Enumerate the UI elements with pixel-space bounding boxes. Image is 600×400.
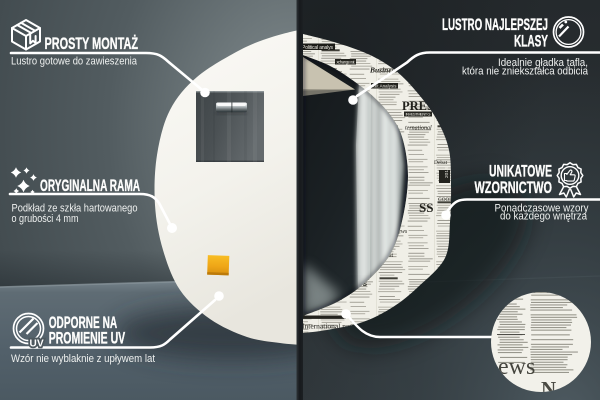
svg-text:LUSTRO NAJLEPSZEJ: LUSTRO NAJLEPSZEJ (442, 16, 548, 34)
svg-text:o grubości 4 mm: o grubości 4 mm (12, 213, 79, 225)
svg-text:INVESTMENT G: INVESTMENT G (406, 112, 431, 117)
svg-text:Political analys: Political analys (302, 45, 334, 51)
svg-text:ORYGINALNA RAMA: ORYGINALNA RAMA (40, 177, 140, 195)
svg-text:PROSTY MONTAŻ: PROSTY MONTAŻ (45, 35, 139, 53)
svg-text:xchange rat: xchange rat (337, 60, 356, 65)
svg-text:WZORNICTWO: WZORNICTWO (475, 179, 553, 197)
svg-text:ternational: ternational (405, 126, 432, 132)
svg-text:do każdego wnętrza: do każdego wnętrza (500, 211, 588, 223)
svg-text:która nie zniekształca odbicia: która nie zniekształca odbicia (462, 66, 589, 78)
svg-text:PROMIENIE UV: PROMIENIE UV (49, 330, 126, 348)
svg-text:Debat: Debat (434, 160, 448, 166)
svg-text:SS: SS (419, 200, 433, 215)
svg-text:UV: UV (30, 339, 45, 350)
svg-text:GOOD: GOOD (438, 197, 453, 203)
svg-text:2013: 2013 (444, 167, 450, 178)
svg-text:KLASY: KLASY (514, 33, 548, 51)
svg-text:Lustro gotowe do zawieszenia: Lustro gotowe do zawieszenia (11, 56, 138, 68)
svg-text:UNIKATOWE: UNIKATOWE (489, 163, 552, 181)
svg-text:Wzór nie wyblaknie z upływem l: Wzór nie wyblaknie z upływem lat (11, 353, 155, 365)
